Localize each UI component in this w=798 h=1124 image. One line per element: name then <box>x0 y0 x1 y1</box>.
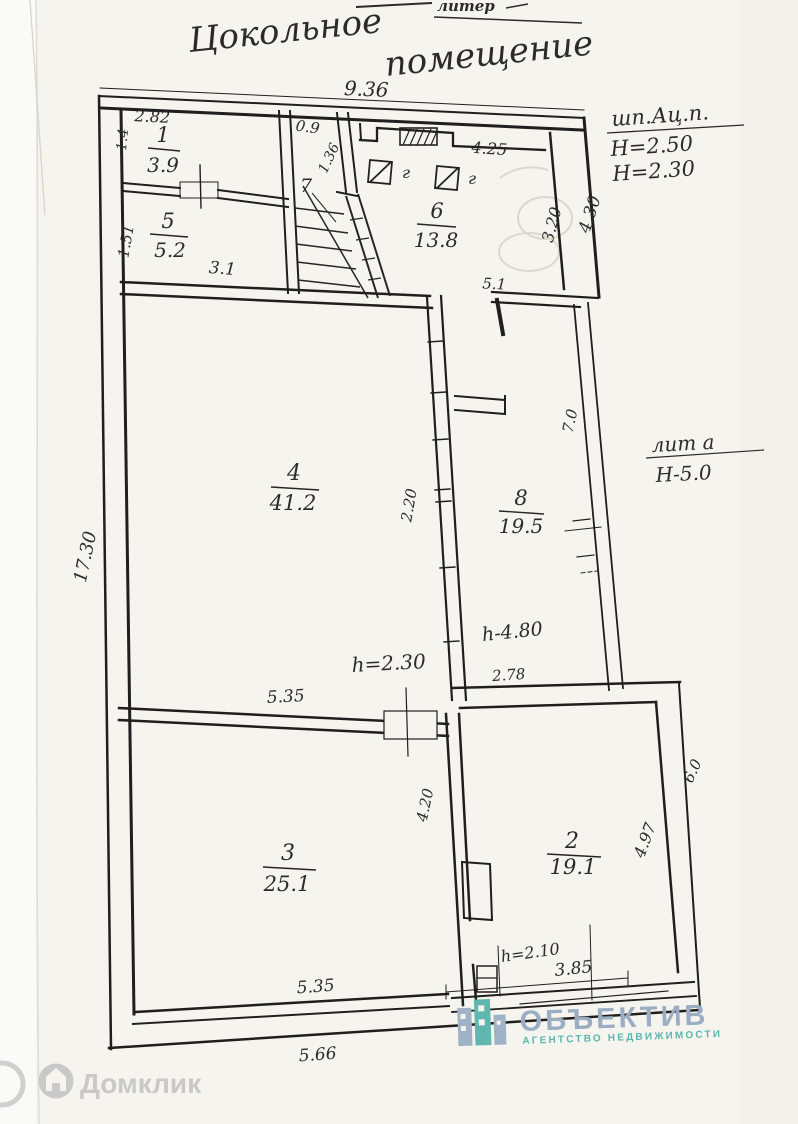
room-label-7: 7 <box>300 175 313 197</box>
dim-room8-width: 2.78 <box>490 665 526 685</box>
dim-room1-width: 2.82 <box>133 106 171 127</box>
door-block <box>384 711 437 739</box>
room-area: 5.2 <box>154 238 186 262</box>
room-area: 19.5 <box>499 514 544 538</box>
dim-step-top: 5.1 <box>482 274 507 293</box>
room-number: 6 <box>430 199 443 223</box>
domclick-wordmark: Домклик <box>80 1068 202 1099</box>
dim-room5-width: 3.1 <box>208 258 236 280</box>
room-area: 19.1 <box>550 855 597 879</box>
room-area: 41.2 <box>269 491 317 515</box>
room-area: 25.1 <box>263 872 311 896</box>
dim-room1-height: 1.4 <box>114 128 132 152</box>
dim-room2-width: 3.85 <box>554 957 594 981</box>
building-window <box>461 1026 466 1031</box>
building-bar <box>493 1014 506 1044</box>
dim-room3-top: 5.35 <box>266 686 305 708</box>
note-liter-label: лит а <box>651 430 715 457</box>
scanned-floor-plan-page: г г 1 3.9 5 5.2 6 13.8 7 4 41.2 8 1 <box>0 0 798 1124</box>
dim-room6-width: 4.25 <box>470 138 508 160</box>
room-number: 4 <box>286 461 301 486</box>
paper-right-shade <box>740 0 798 1124</box>
note-liter-height: Н-5.0 <box>654 460 712 487</box>
dim-stair-width: 0.9 <box>295 116 322 137</box>
room-number: 2 <box>564 829 579 854</box>
domclick-house-door <box>52 1083 60 1091</box>
floor-plan-drawing: г г 1 3.9 5 5.2 6 13.8 7 4 41.2 8 1 <box>0 0 798 1124</box>
building-window <box>497 1021 501 1025</box>
gas-label: г <box>402 163 410 182</box>
dim-height-door: h=2.30 <box>351 649 427 677</box>
wall-stub <box>360 124 361 140</box>
door-swing-mark <box>200 165 201 208</box>
corner-note: литер <box>437 0 495 15</box>
building-window <box>460 1014 465 1019</box>
room-number: 5 <box>161 209 174 233</box>
building-window <box>479 1019 485 1025</box>
room-area: 3.9 <box>147 153 179 177</box>
gas-label: г <box>468 169 476 188</box>
room-area: 13.8 <box>414 228 459 252</box>
dim-room3-bottom: 5.35 <box>296 976 335 999</box>
room-number: 8 <box>514 486 527 510</box>
room-number: 7 <box>300 175 313 197</box>
building-window <box>478 1005 484 1011</box>
paper-left-edge <box>0 0 36 1124</box>
dim-total-width: 9.36 <box>344 76 390 102</box>
dim-bottom-outer: 5.66 <box>298 1044 337 1067</box>
room-number: 3 <box>281 841 295 866</box>
